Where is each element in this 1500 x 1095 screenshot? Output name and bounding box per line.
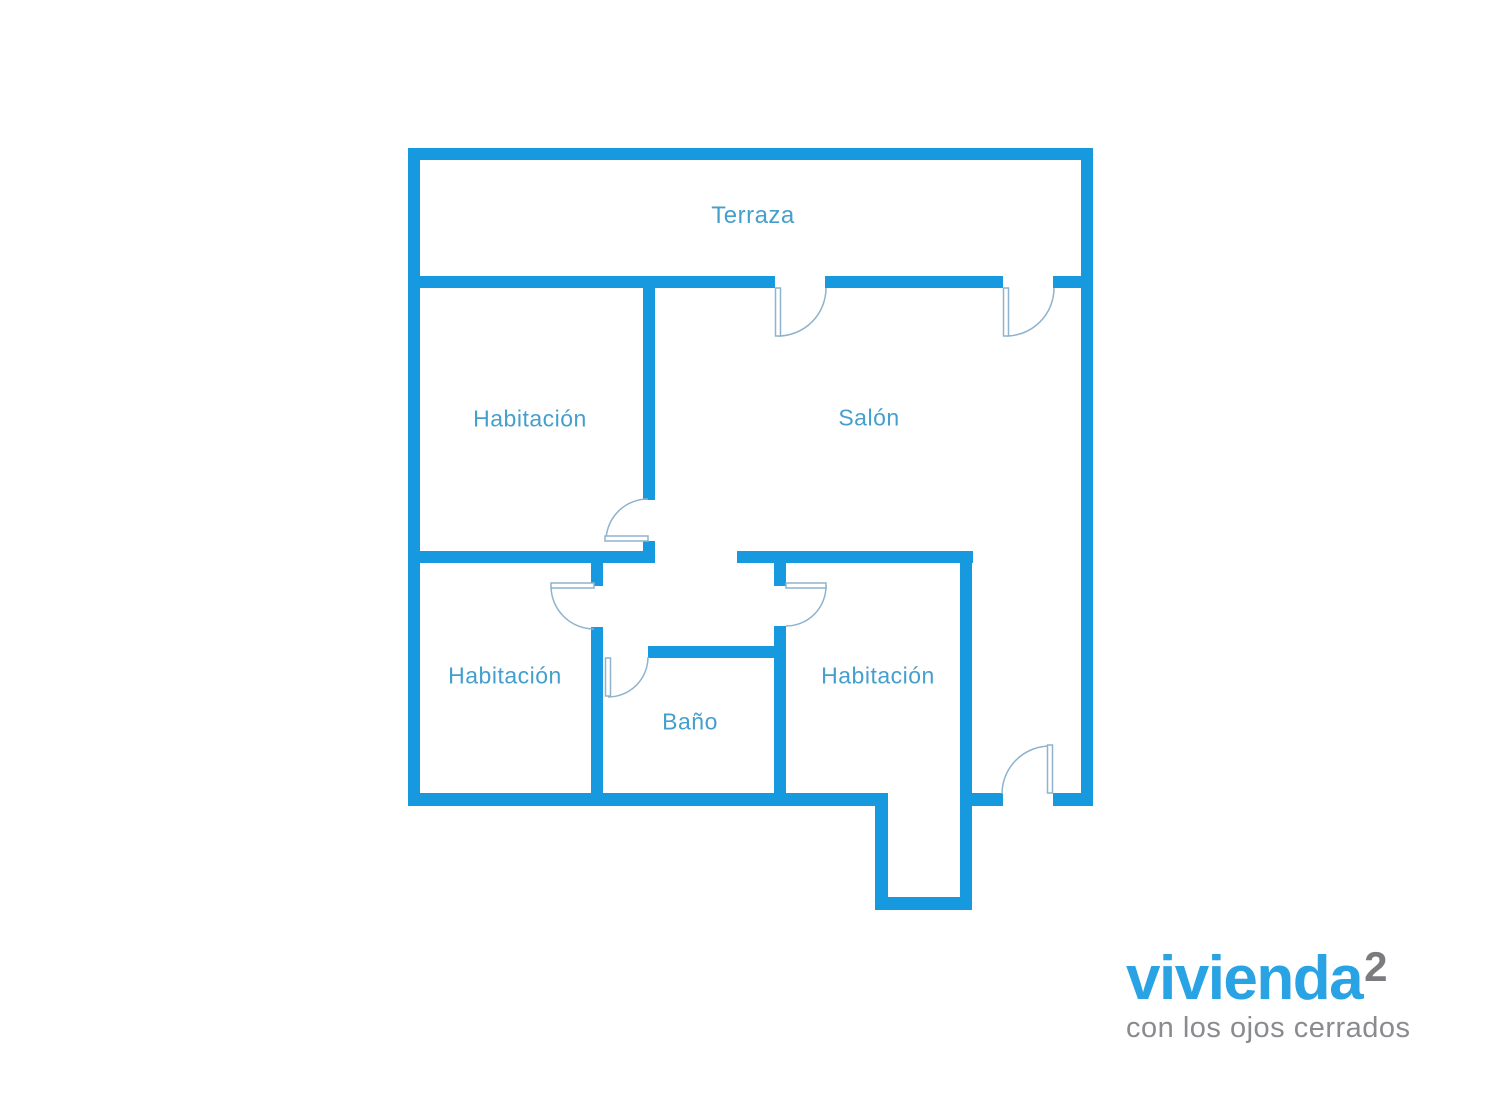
door-habitacion-top-left	[605, 499, 648, 541]
wall-outer-bottom-left	[408, 793, 875, 806]
door-terraza-right	[1004, 288, 1055, 336]
wall-outer-top	[408, 148, 1093, 160]
door-entrance	[1002, 745, 1053, 794]
door-arc	[1006, 288, 1054, 336]
room-label-habitacion-bottom-left: Habitación	[448, 663, 562, 690]
door-habitacion-bottom-right	[786, 583, 826, 626]
room-label-salon: Salón	[838, 405, 899, 432]
logo-brand-line: vivienda2	[1126, 948, 1411, 1010]
door-bano	[606, 657, 649, 697]
door-terraza-left	[776, 288, 827, 336]
room-label-bano: Baño	[662, 709, 718, 736]
wall-annex-left	[875, 793, 888, 910]
door-arc	[1002, 746, 1050, 794]
door-arc	[608, 657, 648, 697]
wall-terraza-3	[1053, 276, 1081, 288]
door-arc	[606, 499, 648, 541]
door-leaf	[605, 536, 648, 541]
door-habitacion-bottom-left	[551, 583, 594, 629]
door-leaf	[786, 583, 826, 588]
door-leaf	[776, 288, 781, 336]
door-arc	[778, 288, 826, 336]
wall-mid-left	[408, 551, 655, 563]
logo-superscript: 2	[1364, 943, 1387, 990]
room-label-habitacion-top-left: Habitación	[473, 406, 587, 433]
wall-outer-right	[1081, 148, 1093, 806]
wall-v3-lower	[774, 626, 786, 793]
door-leaf	[551, 583, 594, 588]
wall-outer-bottom-mid	[972, 793, 1003, 806]
wall-v3-upper	[774, 563, 786, 586]
wall-mid-right	[737, 551, 973, 563]
door-leaf	[1048, 745, 1053, 793]
door-arc	[786, 586, 826, 626]
wall-outer-bottom-right	[1053, 793, 1093, 806]
wall-v1-upper	[643, 288, 655, 500]
floor-plan-page: Terraza Habitación Salón Habitación Baño…	[0, 0, 1500, 1095]
wall-terraza-2	[825, 276, 1003, 288]
door-arc	[551, 586, 594, 629]
door-leaf	[1004, 288, 1009, 336]
logo-brand-text: vivienda	[1126, 944, 1362, 1013]
logo-tagline: con los ojos cerrados	[1126, 1014, 1411, 1043]
wall-v1-stub	[643, 541, 655, 563]
vivienda2-logo: vivienda2 con los ojos cerrados	[1126, 948, 1411, 1043]
wall-annex-bottom	[875, 897, 972, 910]
door-leaf	[606, 658, 611, 696]
room-label-terraza: Terraza	[711, 202, 795, 230]
room-label-habitacion-bottom-right: Habitación	[821, 663, 935, 690]
floor-plan-drawing	[0, 0, 1500, 1095]
wall-outer-left	[408, 148, 420, 806]
wall-v4	[960, 563, 972, 910]
wall-v2-lower	[591, 627, 603, 793]
wall-terraza-1	[408, 276, 775, 288]
wall-bano-top	[648, 646, 786, 658]
